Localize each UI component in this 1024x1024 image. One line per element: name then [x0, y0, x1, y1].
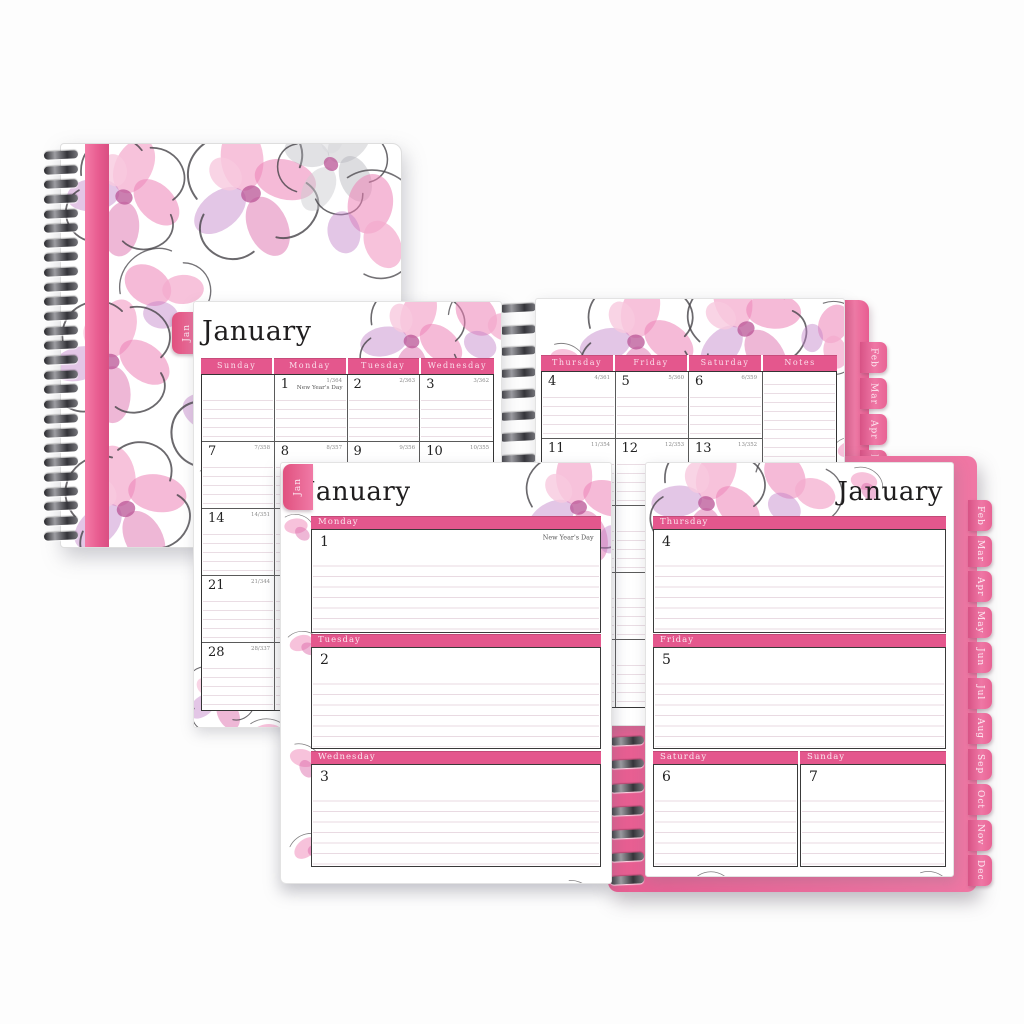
monthly-tab-label-apr: Apr	[869, 420, 879, 440]
weekly-tab-label-aug: Aug	[975, 718, 985, 739]
day-header-friday: Friday	[615, 355, 689, 371]
weekly-tab-label-sep: Sep	[975, 754, 985, 774]
spiral-coil	[44, 209, 78, 219]
day-header-thursday: Thursday	[541, 355, 615, 371]
monthly-title: January	[202, 316, 311, 347]
ruled-lines	[655, 791, 796, 865]
cell-date: 21	[208, 578, 225, 593]
weekly-day-box-thursday: 4	[653, 529, 946, 633]
section-date: 3	[320, 769, 329, 785]
weekly-right-sections: Thursday4Friday5Saturday6Sunday7	[653, 463, 946, 876]
spiral-coil	[44, 297, 78, 307]
calendar-cell-5: 55/360	[616, 372, 690, 439]
spiral-coil	[44, 340, 78, 350]
cell-day-code: 1/364	[327, 377, 343, 383]
spiral-coil	[44, 355, 78, 365]
spiral-coil	[44, 516, 78, 526]
cell-date: 13	[695, 441, 712, 456]
weekly-tab-nov: Nov	[968, 820, 992, 851]
cell-date: 12	[622, 441, 639, 456]
spiral-coil	[610, 829, 644, 839]
weekly-tab-jan-label: Jan	[293, 478, 303, 496]
cell-day-code: 12/353	[665, 441, 684, 447]
cell-date: 5	[622, 374, 630, 389]
weekly-day-bar-sunday: Sunday	[800, 751, 946, 764]
cell-day-code: 3/362	[473, 377, 489, 383]
weekly-tab-mar: Mar	[968, 536, 992, 567]
weekly-tab-jul: Jul	[968, 678, 992, 709]
weekly-day-box-wednesday: 3	[311, 764, 601, 867]
flower-art	[296, 149, 402, 299]
weekly-right-page: January Thursday4Friday5Saturday6Sunday7	[645, 462, 954, 877]
cell-date: 14	[208, 511, 225, 526]
ruled-lines	[655, 556, 944, 631]
spiral-coil	[500, 389, 536, 399]
weekly-tab-label-feb: Feb	[975, 506, 985, 526]
weekly-tab-oct: Oct	[968, 784, 992, 815]
weekly-day-bar-friday: Friday	[653, 634, 946, 647]
cover-accent-stripe	[85, 144, 109, 547]
spiral-coil	[44, 165, 78, 175]
weekly-tab-label-mar: Mar	[975, 540, 985, 562]
spiral-coil	[44, 326, 78, 336]
cell-day-code: 6/359	[742, 374, 758, 380]
day-header-saturday: Saturday	[689, 355, 763, 371]
calendar-cell-7: 77/358	[202, 442, 275, 509]
spiral-coil	[44, 267, 78, 277]
ruled-lines	[313, 556, 599, 631]
day-header-notes: Notes	[763, 355, 837, 371]
spiral-coil	[44, 238, 78, 248]
weekly-tab-sep: Sep	[968, 749, 992, 780]
spiral-coil	[44, 179, 78, 189]
weekly-day-box-monday: 1New Year's Day	[311, 529, 601, 633]
weekly-day-box-sunday: 7	[800, 764, 946, 867]
section-holiday-note: New Year's Day	[543, 534, 594, 541]
calendar-cell-6: 66/359	[689, 372, 763, 439]
section-date: 6	[662, 769, 671, 785]
monthly-tab-apr: Apr	[860, 414, 887, 445]
cell-day-code: 11/354	[591, 441, 610, 447]
ruled-lines	[313, 791, 599, 865]
weekly-day-bar-monday: Monday	[311, 516, 601, 529]
ruled-lines	[655, 674, 944, 747]
cell-holiday-note: New Year's Day	[297, 384, 343, 390]
calendar-cell	[202, 375, 275, 442]
calendar-cell-3: 33/362	[420, 375, 493, 442]
ruled-lines	[802, 791, 944, 865]
weekly-left-sections: Monday1New Year's DayTuesday2Wednesday3	[311, 463, 601, 883]
spiral-coil	[44, 150, 78, 160]
ruled-lines	[421, 392, 492, 440]
spiral-coil	[44, 384, 78, 394]
spiral-coil	[44, 370, 78, 380]
weekly-tab-feb: Feb	[968, 500, 992, 531]
spiral-coil	[44, 501, 78, 511]
monthly-tab-feb: Feb	[860, 342, 887, 373]
spiral-coil	[610, 806, 644, 816]
spiral-coil	[44, 414, 78, 424]
spiral-coil	[500, 368, 536, 378]
ruled-lines	[203, 660, 273, 709]
cell-date: 7	[208, 444, 216, 459]
spiral-coil	[44, 282, 78, 292]
calendar-cell-2: 22/363	[348, 375, 421, 442]
ruled-lines	[543, 389, 614, 437]
ruled-lines	[313, 674, 599, 747]
cell-date: 11	[548, 441, 565, 456]
spiral-coil	[44, 458, 78, 468]
cell-date: 3	[426, 377, 434, 392]
weekly-tab-label-jul: Jul	[975, 685, 985, 700]
planner-product-photo: FebMarAprMay Jan January SundayMondayTue…	[0, 0, 1024, 1024]
spiral-coil	[44, 428, 78, 438]
cell-day-code: 9/356	[400, 444, 416, 450]
cell-date: 1	[281, 377, 289, 392]
spiral-coil	[500, 433, 536, 443]
section-date: 7	[809, 769, 818, 785]
spiral-coil	[44, 223, 78, 233]
cell-day-code: 13/352	[738, 441, 757, 447]
spiral-binding	[44, 151, 78, 540]
calendar-cell-1: 11/364New Year's Day	[275, 375, 348, 442]
weekly-day-bar-saturday: Saturday	[653, 751, 798, 764]
weekly-tab-may: May	[968, 607, 992, 638]
day-header-sunday: Sunday	[201, 358, 274, 374]
cell-date: 10	[426, 444, 443, 459]
ruled-lines	[349, 392, 419, 440]
weekly-left-page: January Monday1New Year's DayTuesday2Wed…	[280, 462, 612, 884]
calendar-cell-21: 2121/344	[202, 576, 275, 643]
calendar-cell-28: 2828/337	[202, 643, 275, 710]
cell-date: 6	[695, 374, 703, 389]
spiral-coil	[44, 311, 78, 321]
spiral-coil	[44, 253, 78, 263]
ruled-lines	[276, 392, 346, 440]
cell-day-code: 21/344	[251, 578, 270, 584]
section-date: 1	[320, 534, 329, 550]
section-date: 4	[662, 534, 671, 550]
spiral-coil	[610, 760, 644, 770]
spiral-coil	[500, 346, 536, 356]
weekly-day-bar-wednesday: Wednesday	[311, 751, 601, 764]
cell-day-code: 7/358	[254, 444, 270, 450]
weekly-tab-aug: Aug	[968, 713, 992, 744]
spiral-coil	[44, 194, 78, 204]
weekly-tab-label-oct: Oct	[975, 790, 985, 809]
weekly-day-bar-thursday: Thursday	[653, 516, 946, 529]
flower-art	[60, 284, 188, 439]
weekly-tab-label-apr: Apr	[975, 577, 985, 597]
weekly-day-bar-tuesday: Tuesday	[311, 634, 601, 647]
weekly-tab-label-may: May	[975, 611, 985, 634]
cell-date: 9	[354, 444, 362, 459]
monthly-tab-mar: Mar	[860, 378, 887, 409]
spiral-coil	[44, 487, 78, 497]
cell-day-code: 4/361	[595, 374, 611, 380]
cell-day-code: 10/355	[470, 444, 489, 450]
weekly-tab-jun: Jun	[968, 642, 992, 673]
monthly-tab-jan-label: Jan	[182, 324, 192, 342]
ruled-lines	[203, 392, 273, 440]
spiral-coil	[44, 531, 78, 541]
spiral-coil	[610, 852, 644, 862]
cell-day-code: 8/357	[327, 444, 343, 450]
cell-day-code: 14/351	[251, 511, 270, 517]
weekly-tab-label-nov: Nov	[975, 824, 985, 845]
cell-date: 4	[548, 374, 556, 389]
ruled-lines	[617, 389, 688, 437]
cell-date: 8	[281, 444, 289, 459]
section-date: 5	[662, 652, 671, 668]
spiral-coil	[44, 399, 78, 409]
ruled-lines	[690, 389, 761, 437]
flower-art	[166, 143, 336, 279]
spiral-coil	[610, 875, 644, 885]
calendar-cell-14: 1414/351	[202, 509, 275, 576]
spiral-coil	[44, 472, 78, 482]
spiral-coil	[500, 411, 536, 421]
flower-art	[266, 143, 396, 229]
weekly-day-box-tuesday: 2	[311, 647, 601, 749]
weekly-tab-label-dec: Dec	[975, 860, 985, 881]
cell-date: 28	[208, 645, 225, 660]
weekly-day-box-friday: 5	[653, 647, 946, 749]
cell-day-code: 28/337	[251, 645, 270, 651]
weekly-tab-jan: Jan	[283, 464, 313, 510]
ruled-lines	[203, 526, 273, 574]
spiral-coil	[44, 443, 78, 453]
flower-art	[60, 143, 199, 272]
ruled-lines	[203, 459, 273, 507]
weekly-tab-dec: Dec	[968, 855, 992, 886]
day-header-wednesday: Wednesday	[421, 358, 494, 374]
weekly-day-box-saturday: 6	[653, 764, 798, 867]
section-date: 2	[320, 652, 329, 668]
spiral-coil	[500, 303, 536, 313]
spiral-coil	[610, 783, 644, 793]
monthly-tab-label-mar: Mar	[869, 383, 879, 405]
weekly-tab-label-jun: Jun	[975, 648, 985, 666]
day-header-tuesday: Tuesday	[348, 358, 421, 374]
weekly-tab-apr: Apr	[968, 571, 992, 602]
monthly-tab-label-feb: Feb	[869, 348, 879, 368]
calendar-cell-4: 44/361	[542, 372, 616, 439]
day-header-monday: Monday	[274, 358, 347, 374]
cell-day-code: 2/363	[400, 377, 416, 383]
ruled-lines	[203, 593, 273, 641]
spiral-coil	[500, 325, 536, 335]
spiral-coil	[610, 736, 644, 746]
cell-date: 2	[354, 377, 362, 392]
cell-day-code: 5/360	[668, 374, 684, 380]
